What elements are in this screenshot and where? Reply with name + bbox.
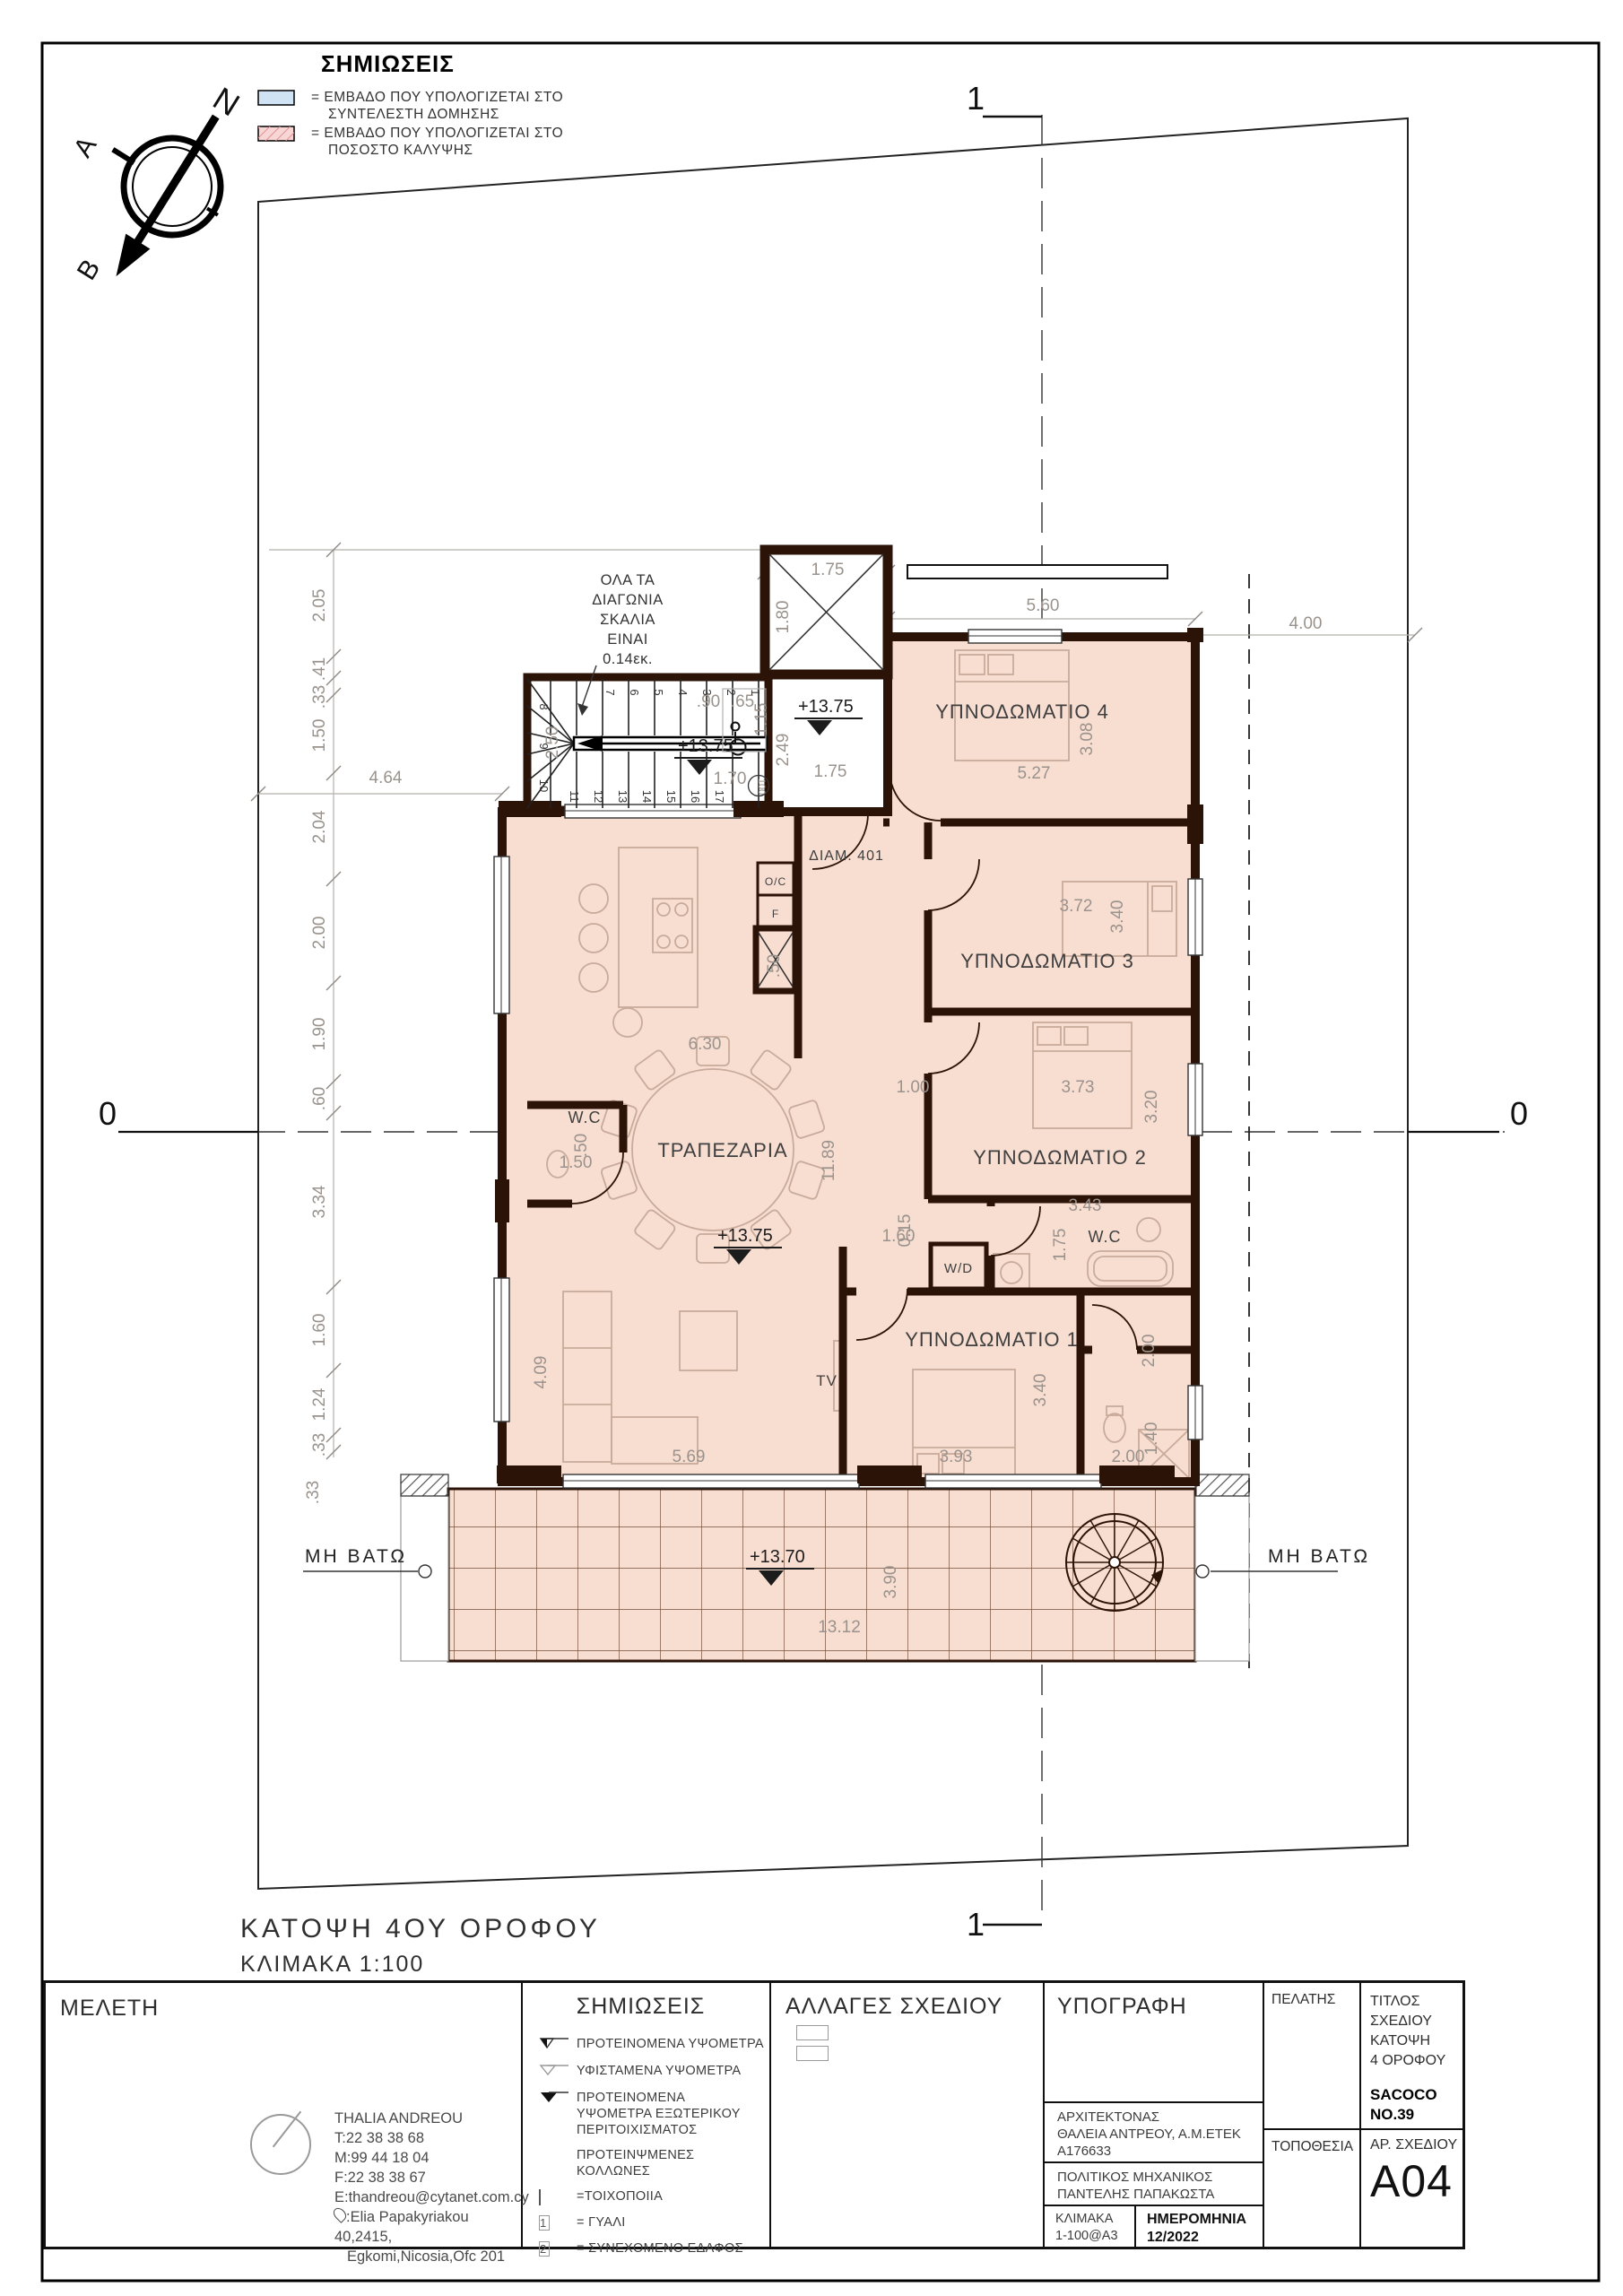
note-item: 1 = ΓΥΑΛΙ	[539, 2214, 769, 2231]
engineer-row: ΠΟΛΙΤΙΚΟΣ ΜΗΧΑΝΙΚΟΣ ΠΑΝΤΕΛΗΣ ΠΑΠΑΚΩΣΤΑ	[1045, 2161, 1263, 2205]
room-label: F	[772, 908, 779, 920]
contact-line: M:99 44 18 04	[334, 2148, 529, 2168]
stair-note-line: ΔΙΑΓΩΝΙΑ	[592, 592, 664, 608]
dimension-label: 3.73	[1062, 1078, 1095, 1097]
stair-number: 4	[676, 689, 690, 695]
revision-box	[796, 2025, 829, 2040]
scale-label: ΚΛΙΜΑΚΑ	[1055, 2211, 1134, 2228]
client-label: ΠΕΛΑΤΗΣ	[1264, 1983, 1359, 2130]
room-label: ΥΠΝΟΔΩΜΑΤΙΟ 4	[935, 700, 1109, 723]
architect-contact: THALIA ANDREOU T:22 38 38 68 M:99 44 18 …	[334, 2109, 529, 2266]
masonry-hatch-left	[401, 1474, 448, 1496]
drawing-sheet: 1 1 0 0 N A B ΣΗΜΙΩΣΕΙΣ = ΕΜΒΑΔΟ ΠΟΥ ΥΠΟ…	[0, 0, 1623, 2296]
architect-label: ΑΡΧΙΤΕΚΤΟΝΑΣ	[1057, 2109, 1263, 2126]
dimension-label: 2.00	[1140, 1335, 1159, 1368]
pink-hatch-swatch-lines	[258, 126, 294, 141]
dimension-label: 6.30	[689, 1035, 722, 1054]
note-text: =ΤΟΙΧΟΠΟΙΙΑ	[577, 2188, 663, 2205]
room-label: ΥΠΝΟΔΩΜΑΤΙΟ 1	[905, 1328, 1079, 1351]
stair-number: 8	[537, 703, 551, 709]
stair-number: 17	[713, 790, 726, 803]
titleblock-title-cell: ΤΙΤΛΟΣ ΣΧΕΔΙΟΥ ΚΑΤΟΨΗ 4 ΟΡΟΦΟΥ SACOCO NO…	[1359, 1983, 1462, 2247]
stair-number: 16	[689, 790, 702, 803]
sheet-number-label: ΑΡ. ΣΧΕΔΙΟΥ	[1370, 2137, 1462, 2153]
dimension-label: 1.90	[310, 1018, 329, 1051]
dimension-label: 3.40	[1108, 900, 1127, 934]
meleti-label: ΜΕΛΕΤΗ	[60, 1996, 159, 2021]
titleblock-client-cell: ΠΕΛΑΤΗΣ ΤΟΠΟΘΕΣΙΑ	[1263, 1983, 1359, 2247]
dimension-label: 1.70	[714, 770, 747, 788]
dimension-label: 5.27	[1018, 764, 1051, 783]
level-value: +13.75	[798, 697, 854, 717]
dimension-label: 3.43	[1069, 1196, 1102, 1215]
level-value: +13.75	[717, 1226, 773, 1246]
dimension-label: 4.00	[1289, 614, 1323, 633]
note-text: ΠΡΟΤΕΙΝΟΜΕΝΑ ΥΨΟΜΕΤΡΑ	[577, 2036, 764, 2052]
section-marker-left: 0	[99, 1095, 117, 1132]
dimension-label: 1.75	[1051, 1229, 1070, 1262]
no-access-slab-right	[1195, 1496, 1249, 1661]
dimension-label: .33	[310, 685, 329, 709]
titleblock-notes-cell: ΣΗΜΙΩΣΕΙΣ ΠΡΟΤΕΙΝΟΜΕΝΑ ΥΨΟΜΕΤΡΑ ΥΦΙΣΤΑΜΕ…	[521, 1983, 769, 2247]
stair-number: 10	[537, 779, 551, 792]
title-block: ΜΕΛΕΤΗ THALIA ANDREOU T:22 38 38 68 M:99…	[43, 1980, 1465, 2249]
legend-title: ΣΗΜΙΩΣΕΙΣ	[321, 50, 455, 77]
dimension-label: 2.04	[310, 810, 329, 843]
stair-number: 11	[568, 790, 581, 803]
titleblock-signature-cell: ΥΠΟΓΡΑΦΗ ΑΡΧΙΤΕΚΤΟΝΑΣ ΘΑΛΕΙΑ ΑΝΤΡΕΟΥ, Α.…	[1043, 1983, 1263, 2247]
contact-line: T:22 38 38 68	[334, 2128, 529, 2148]
section-marker-top: 1	[967, 80, 985, 117]
room-label: ΥΠΝΟΔΩΜΑΤΙΟ 3	[960, 950, 1134, 972]
sheet-number: A04	[1370, 2155, 1462, 2207]
compass-a-label: A	[68, 132, 103, 162]
stair-note-line: ΕΙΝΑΙ	[607, 631, 648, 648]
dimension-label: .50	[765, 954, 784, 978]
room-label: O/C	[765, 875, 786, 888]
project-name: SACOCO	[1370, 2085, 1462, 2105]
dimension-label: 3.40	[1031, 1374, 1050, 1407]
blue-area-swatch	[258, 91, 294, 105]
stair-number: 6	[628, 689, 641, 695]
stair-number: 5	[652, 689, 665, 695]
note-item: =ΤΟΙΧΟΠΟΙΙΑ	[539, 2188, 769, 2205]
stair-number: 15	[664, 790, 678, 803]
dimension-label: 3.34	[310, 1185, 329, 1218]
dimension-label: .33	[310, 1433, 329, 1457]
room-label: ΔΙΑΜ. 401	[809, 848, 884, 864]
legend-item-text: ΠΟΣΟΣΤΟ ΚΑΛΥΨΗΣ	[328, 143, 473, 158]
changes-title: ΑΛΛΑΓΕΣ ΣΧΕΔΙΟΥ	[785, 1994, 1002, 2019]
level-half-triangle-icon	[539, 2037, 577, 2054]
dimension-label: 11.89	[820, 1140, 838, 1181]
dimension-label: .50	[572, 1134, 591, 1157]
level-value: +13.75	[678, 736, 733, 756]
dimension-label: 1.15	[752, 703, 771, 736]
engineer-name: ΠΑΝΤΕΛΗΣ ΠΑΠΑΚΩΣΤΑ	[1057, 2186, 1263, 2203]
dimension-label: 2.00	[1112, 1448, 1145, 1466]
room-label: ΤΡΑΠΕΖΑΡΙΑ	[657, 1139, 787, 1161]
architect-logo	[250, 2114, 311, 2175]
location-label: ΤΟΠΟΘΕΣΙΑ	[1264, 2130, 1359, 2247]
note-text: = ΓΥΑΛΙ	[577, 2214, 626, 2231]
level-triangle-icon	[807, 720, 832, 735]
room-label: W.C	[1089, 1228, 1122, 1246]
dimension-label: 2.49	[774, 734, 793, 767]
dimension-label: 1.00	[897, 1078, 930, 1097]
dimension-label: 100	[756, 778, 767, 795]
masonry-swatch-icon	[539, 2189, 577, 2205]
date-label: ΗΜΕΡΟΜΗΝΙΑ	[1147, 2211, 1263, 2229]
architect-row: ΑΡΧΙΤΕΚΤΟΝΑΣ ΘΑΛΕΙΑ ΑΝΤΡΕΟΥ, Α.Μ.ΕΤΕΚ Α1…	[1045, 2101, 1263, 2161]
titleblock-meleti-cell: ΜΕΛΕΤΗ THALIA ANDREOU T:22 38 38 68 M:99…	[46, 1983, 521, 2247]
contact-line: Egkomi,Nicosia,Ofc 201	[334, 2247, 529, 2266]
drawing-title-line1: ΚΑΤΟΨΗ	[1370, 2031, 1462, 2051]
stair-note: ΟΛΑ ΤΑΔΙΑΓΩΝΙΑΣΚΑΛΙΑΕΙΝΑΙ0.14εκ.	[592, 572, 664, 667]
drawing-title-label: ΤΙΤΛΟΣ ΣΧΕΔΙΟΥ	[1370, 1992, 1462, 2031]
signature-title: ΥΠΟΓΡΑΦΗ	[1057, 1994, 1187, 2019]
level-value: +13.70	[750, 1547, 805, 1567]
stair-number: 12	[592, 790, 605, 803]
stair-number: 2	[725, 689, 738, 695]
stair-note-line: ΟΛΑ ΤΑ	[601, 572, 655, 588]
dimension-label: 3.72	[1060, 897, 1093, 916]
room-label: W/D	[944, 1261, 973, 1276]
contact-line: F:22 38 38 67	[334, 2168, 529, 2187]
no-access-slab-left	[401, 1496, 448, 1661]
note-item: ΠΡΟΤΕΙΝΟΜΕΝΑ ΥΨΟΜΕΤΡΑ ΕΞΩΤΕΡΙΚΟΥ ΠΕΡΙΤΟΙ…	[539, 2090, 769, 2138]
project-number: NO.39	[1370, 2105, 1462, 2125]
floor-plan-canvas: 1 1 0 0 N A B ΣΗΜΙΩΣΕΙΣ = ΕΜΒΑΔΟ ΠΟΥ ΥΠΟ…	[0, 0, 1623, 2296]
dimension-label: 4.64	[369, 769, 403, 787]
note-item: ΠΡΟΤΕΙΝΟΜΕΝΑ ΥΨΟΜΕΤΡΑ	[539, 2036, 769, 2054]
ground-swatch-icon: 2	[539, 2241, 577, 2257]
section-marker-right: 0	[1510, 1095, 1528, 1132]
contact-line: E:thandreou@cytanet.com.cy	[334, 2187, 529, 2207]
dimension-label: 0.15	[896, 1214, 915, 1248]
section-marker-bottom: 1	[967, 1906, 985, 1943]
stair-number: 1	[749, 689, 762, 695]
plan-scale: ΚΛΙΜΑΚΑ 1:100	[240, 1952, 424, 1977]
architect-name: ΘΑΛΕΙΑ ΑΝΤΡΕΟΥ, Α.Μ.ΕΤΕΚ Α176633	[1057, 2126, 1263, 2160]
room-label: W.C	[568, 1109, 602, 1126]
note-text: ΥΦΙΣΤΑΜΕΝΑ ΥΨΟΜΕΤΡΑ	[577, 2063, 741, 2079]
dimension-label: 2.05	[310, 589, 329, 622]
dimension-label: 1.50	[310, 719, 329, 752]
no-access-label-left: ΜΗ ΒΑΤΩ	[305, 1546, 407, 1567]
legend-item-text: ΣΥΝΤΕΛΕΣΤΗ ΔΟΜΗΣΗΣ	[328, 107, 499, 122]
dimension-label: 1.60	[310, 1314, 329, 1347]
dimension-label: 3.20	[1142, 1091, 1161, 1124]
no-access-label-right: ΜΗ ΒΑΤΩ	[1268, 1546, 1370, 1567]
revision-box	[796, 2046, 829, 2061]
masonry-hatch-right	[1195, 1474, 1249, 1496]
level-open-triangle-icon	[539, 2064, 577, 2081]
contact-name: THALIA ANDREOU	[334, 2109, 529, 2128]
dimension-label: 1.80	[774, 601, 793, 634]
level-solid-triangle-icon	[539, 2091, 577, 2108]
titleblock-changes-cell: ΑΛΛΑΓΕΣ ΣΧΕΔΙΟΥ	[769, 1983, 1043, 2247]
dimension-label: 5.69	[673, 1448, 706, 1466]
note-text: ΠΡΟΤΕΙΝΨΜΕΝΕΣ ΚΟΛΛΩΝΕΣ	[577, 2147, 769, 2179]
dimension-label: 1.75	[811, 561, 845, 579]
stair-note-line: ΣΚΑΛΙΑ	[600, 612, 655, 628]
note-text: ΠΡΟΤΕΙΝΟΜΕΝΑ ΥΨΟΜΕΤΡΑ ΕΞΩΤΕΡΙΚΟΥ ΠΕΡΙΤΟΙ…	[577, 2090, 747, 2138]
stair-number: 14	[640, 790, 654, 803]
date-value: 12/2022	[1147, 2229, 1263, 2247]
dimension-label: 1.40	[1142, 1422, 1161, 1456]
dimension-label: 1.75	[814, 762, 847, 781]
engineer-label: ΠΟΛΙΤΙΚΟΣ ΜΗΧΑΝΙΚΟΣ	[1057, 2169, 1263, 2186]
legend-item-text: = ΕΜΒΑΔΟ ΠΟΥ ΥΠΟΛΟΓΙΖΕΤΑΙ ΣΤΟ	[311, 90, 563, 105]
date-cell: ΗΜΕΡΟΜΗΝΙΑ 12/2022	[1134, 2206, 1263, 2247]
dimension-label: 4.09	[532, 1356, 551, 1389]
room-label: ΥΠΝΟΔΩΜΑΤΙΟ 2	[973, 1146, 1147, 1169]
stair-number: 7	[603, 689, 617, 695]
glass-swatch-icon: 1	[539, 2215, 577, 2231]
parapet-wall	[907, 565, 1167, 578]
stair-number: 9	[537, 743, 551, 749]
legend-item-text: = ΕΜΒΑΔΟ ΠΟΥ ΥΠΟΛΟΓΙΖΕΤΑΙ ΣΤΟ	[311, 126, 563, 141]
dimension-label: .41	[310, 657, 329, 681]
dimension-label: .60	[310, 1087, 329, 1110]
dimension-label: 5.60	[1027, 596, 1060, 615]
stair-note-line: 0.14εκ.	[603, 651, 653, 667]
north-compass-icon: N A B	[13, 28, 281, 320]
scale-cell: ΚΛΙΜΑΚΑ 1-100@A3	[1045, 2206, 1134, 2247]
dimension-label: 3.90	[881, 1566, 900, 1599]
stair-number: 3	[700, 689, 714, 695]
scale-value: 1-100@A3	[1055, 2228, 1134, 2245]
room-label: TV	[816, 1372, 838, 1389]
spiral-stair	[1066, 1514, 1163, 1611]
stair-number: 13	[616, 790, 629, 803]
compass-b-label: B	[72, 255, 107, 285]
drawing-title-line2: 4 ΟΡΟΦΟΥ	[1370, 2051, 1462, 2071]
notes-title: ΣΗΜΙΩΣΕΙΣ	[539, 1994, 742, 2020]
dimension-label: 1.24	[310, 1387, 329, 1421]
dimension-label: 3.08	[1078, 723, 1097, 756]
dimension-label: .33	[304, 1481, 323, 1504]
note-text: = ΣΥΝΕΧΟΜΕΝΟ ΕΔΑΦΟΣ	[577, 2240, 743, 2257]
note-item: ΠΡΟΤΕΙΝΨΜΕΝΕΣ ΚΟΛΛΩΝΕΣ	[539, 2147, 769, 2179]
dimension-label: 2.00	[310, 917, 329, 950]
plan-title: ΚΑΤΟΨΗ 4ΟΥ ΟΡΟΦΟΥ	[240, 1914, 601, 1944]
dimension-label: 13.12	[818, 1618, 861, 1637]
dimension-label: 3.93	[940, 1448, 973, 1466]
note-item: ΥΦΙΣΤΑΜΕΝΑ ΥΨΟΜΕΤΡΑ	[539, 2063, 769, 2081]
contact-line: :Elia Papakyriakou 40,2415,	[334, 2207, 529, 2247]
note-item: 2 = ΣΥΝΕΧΟΜΕΝΟ ΕΔΑΦΟΣ	[539, 2240, 769, 2257]
